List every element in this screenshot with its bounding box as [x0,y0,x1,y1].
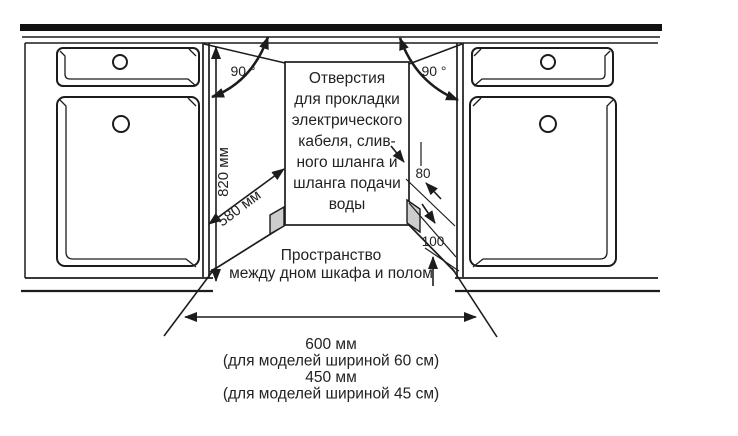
left-angle-label: 90 ° [230,63,255,79]
countertop-bar [20,24,662,31]
right-angle-label: 90 ° [421,63,446,79]
floor-gap-note: Пространство между дном шкафа и полом [229,247,433,286]
hole-dim-bottom-label: 100 [422,234,445,249]
hole-dim-arrow-up [426,183,441,199]
left-wall-cable-hole [270,207,284,234]
niche-dimensions: 820 мм 580 мм [209,47,284,281]
right-drawer-knob [541,55,555,69]
right-door-knob [540,116,556,132]
holes-note-line-2: для прокладки [294,91,400,108]
left-cabinet [21,43,213,291]
floor-gap-line-2: между дном шкафа и полом [229,265,433,282]
installation-diagram-page: 90 ° 90 ° 820 мм 580 мм 80 100 Отверстия… [0,0,738,436]
niche-height-label: 820 мм [215,147,232,197]
width-note-line-4: (для моделей шириной 45 см) [223,386,439,403]
left-drawer-front [57,48,199,86]
holes-note-line-5: ного шланга и [297,154,398,171]
right-cabinet [455,48,660,291]
left-door-knob [113,116,129,132]
hole-dim-top-label: 80 [415,166,430,181]
holes-note-line-4: кабеля, слив- [298,133,395,150]
holes-note-line-3: электрического [292,112,403,129]
holes-note-line-7: воды [329,196,366,213]
right-wall-cable-hole [407,200,420,232]
niche-right-top-perspective-edge [409,44,462,64]
holes-note-line-1: Отверстия [309,70,385,87]
width-note-line-3: 450 мм [305,369,356,386]
width-note-line-2: (для моделей шириной 60 см) [223,353,439,370]
width-dimension: 600 мм (для моделей шириной 60 см) 450 м… [164,268,497,403]
left-drawer-knob [113,55,127,69]
cabinet-niche-installation-diagram: 90 ° 90 ° 820 мм 580 мм 80 100 Отверстия… [0,0,738,436]
countertop [20,24,662,43]
holes-note-line-6: шланга подачи [293,175,401,192]
holes-note: Отверстия для прокладки электрического к… [292,70,403,213]
floor-gap-line-1: Пространство [281,247,382,264]
width-note-line-1: 600 мм [305,336,356,353]
